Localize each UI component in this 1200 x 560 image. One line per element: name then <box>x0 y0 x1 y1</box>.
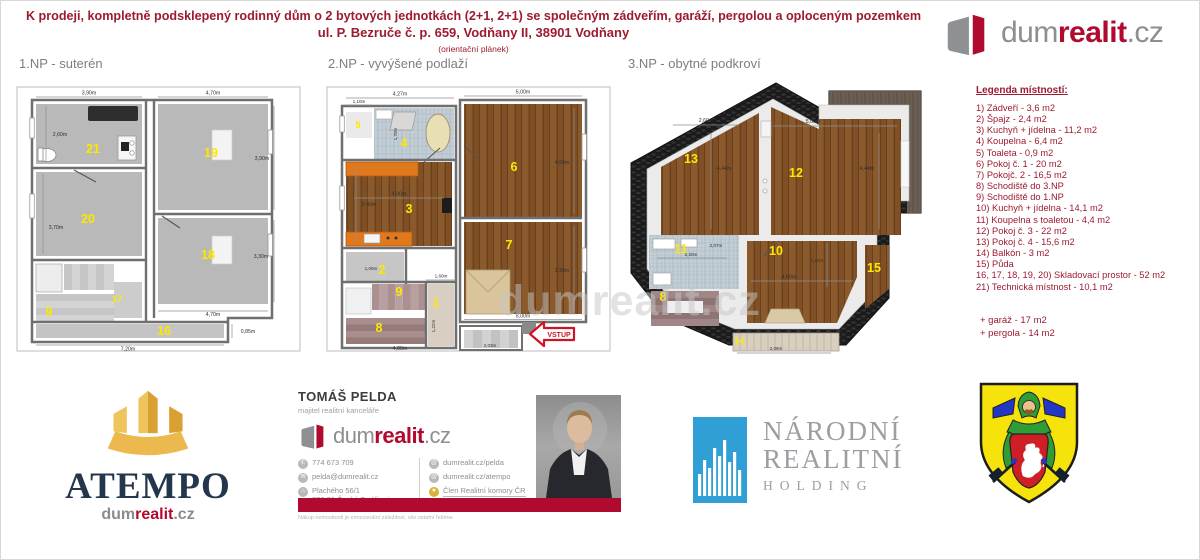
room-number-7: 7 <box>506 238 513 252</box>
atempo-logo: ATEMPO dumrealit.cz <box>39 389 257 524</box>
legend-item: 16, 17, 18, 19, 20) Skladovací prostor -… <box>976 270 1194 281</box>
legend-item: 13) Pokoj č. 4 - 15,6 m2 <box>976 237 1194 248</box>
washbasin <box>376 110 392 119</box>
legend-extra: + pergola - 14 m2 <box>976 327 1194 340</box>
dim-label: 4,70m <box>206 312 220 318</box>
room-number-4: 4 <box>401 136 408 150</box>
dim-label: 1,10m <box>811 258 824 263</box>
room-number-2: 2 <box>379 263 386 277</box>
room-number-9: 9 <box>396 285 403 299</box>
appliance <box>118 136 136 160</box>
window <box>340 186 345 210</box>
room-number-14: 14 <box>734 336 745 347</box>
room-number-1: 1 <box>433 296 440 310</box>
sink <box>364 234 380 243</box>
legend-item: 4) Koupelna - 6,4 m2 <box>976 136 1194 147</box>
dim-label: 2,60m <box>53 132 67 138</box>
legend-item: 1) Zádveří - 3,6 m2 <box>976 103 1194 114</box>
room-number-8: 8 <box>376 321 383 335</box>
email-icon: ✉ <box>298 473 308 483</box>
listing-note: (orientační plánek) <box>1 44 946 54</box>
balcony <box>733 333 839 351</box>
dim-label: 5,00m <box>516 90 530 96</box>
floorplan-1np: 3,90m 4,70m 2,60m 3,70m 3,90m 3,30m 4,70… <box>16 86 301 356</box>
web-icon: @ <box>429 459 439 469</box>
room-number-9: 9 <box>46 305 53 319</box>
room-legend: Legenda místností: 1) Zádveří - 3,6 m2 2… <box>976 85 1194 340</box>
dim-label: 2,06m <box>770 346 783 351</box>
dumrealit-logo: dumrealit.cz <box>942 7 1163 59</box>
nrh-wordmark: NÁRODNÍ REALITNÍ HOLDING <box>763 417 903 494</box>
dim-label: 4,44m <box>717 166 731 172</box>
bathtub <box>426 114 450 152</box>
dim-label: 3,30m <box>254 254 268 260</box>
legend-item: 14) Balkón - 3 m2 <box>976 248 1194 259</box>
window <box>582 134 587 160</box>
dim-label: 2,07m <box>710 243 723 248</box>
room-number-16: 16 <box>157 324 171 338</box>
dim-label: 2,60m <box>699 118 713 124</box>
legend-item: 2) Špajz - 2,4 m2 <box>976 114 1194 125</box>
window <box>268 130 273 154</box>
legend-item: 6) Pokoj č. 1 - 20 m2 <box>976 159 1194 170</box>
crown-icon <box>88 389 208 461</box>
legend-extra: + garáž - 17 m2 <box>976 314 1194 327</box>
legend-title: Legenda místností: <box>976 85 1194 96</box>
dim-label: 3,40m <box>362 202 376 208</box>
listing-address: ul. P. Bezruče č. p. 659, Vodňany II, 38… <box>1 25 946 40</box>
watermark: dumrealit.cz <box>498 277 761 326</box>
agent-web2: dumrealit.cz/atempo <box>443 472 511 481</box>
roof-band <box>829 91 921 107</box>
window <box>268 234 273 256</box>
window <box>30 194 35 218</box>
agent-photo <box>536 395 621 498</box>
plan1-title: 1.NP - suterén <box>19 56 103 71</box>
legend-item: 10) Kuchyň + jídelna - 14,1 m2 <box>976 203 1194 214</box>
room-number-6: 6 <box>511 160 518 174</box>
web-icon: @ <box>429 473 439 483</box>
room-number-17: 17 <box>112 294 123 305</box>
dim-label: 1,70m <box>393 127 398 140</box>
agent-email: pelda@dumrealit.cz <box>312 472 378 481</box>
brand-realit: realit <box>1058 16 1127 49</box>
chimney <box>761 121 771 137</box>
stove <box>442 198 452 213</box>
legend-item: 15) Půda <box>976 259 1194 270</box>
badge-icon: ★ <box>429 487 439 497</box>
kitchen-cabinets <box>346 162 418 176</box>
dark-unit <box>88 106 138 121</box>
dim-label: 2,03m <box>484 343 497 348</box>
dim-label: 4,44m <box>860 166 874 172</box>
dim-label: 3,90m <box>82 91 96 97</box>
washbasin <box>653 239 675 249</box>
room-number-10: 10 <box>769 244 783 258</box>
dim-label: 1,60m <box>435 274 448 279</box>
dim-label: 0,85m <box>241 329 255 335</box>
nrh-logo: NÁRODNÍ REALITNÍ HOLDING <box>693 417 903 503</box>
window <box>582 248 587 272</box>
dim-label: 4,00m <box>393 346 407 352</box>
agent-phone-row: ✆774 673 709 <box>298 458 410 469</box>
atempo-name: ATEMPO <box>39 468 257 505</box>
dim-label: 4,00m <box>555 160 569 166</box>
entrance-label: VSTUP <box>547 332 571 339</box>
room-number-15: 15 <box>867 261 881 275</box>
stairs-down <box>346 318 426 344</box>
agent-phone: 774 673 709 <box>312 458 354 467</box>
legend-item: 8) Schodiště do 3.NP <box>976 181 1194 192</box>
agent-membership: Člen Realitní komory ČR <box>443 486 526 497</box>
phone-icon: ✆ <box>298 459 308 469</box>
skyline-icon <box>693 417 747 503</box>
real-estate-flyer: K prodeji, kompletně podsklepený rodinný… <box>0 0 1200 560</box>
agent-web-row: @dumrealit.cz/pelda <box>429 458 526 469</box>
room-number-5: 5 <box>355 120 361 131</box>
dim-label: 3,70m <box>49 225 63 231</box>
legend-item: 9) Schodiště do 1.NP <box>976 192 1194 203</box>
agent-email-row: ✉pelda@dumrealit.cz <box>298 472 410 483</box>
house-icon <box>298 420 328 451</box>
agent-slogan: Nákup nemovitosti je emocionální záležit… <box>298 515 454 521</box>
legend-item: 11) Koupelna s toaletou - 4,4 m2 <box>976 215 1194 226</box>
brand-wordmark: dumrealit.cz <box>1001 18 1163 48</box>
agent-membership-row: ★Člen Realitní komory ČR <box>429 486 526 497</box>
legend-item: 7) Pokojč. 2 - 16,5 m2 <box>976 170 1194 181</box>
room-number-11: 11 <box>674 242 687 256</box>
dim-label: 1,00m <box>365 266 378 271</box>
dim-label: 7,20m <box>121 347 135 353</box>
dim-label: 3,90m <box>255 156 269 162</box>
header: K prodeji, kompletně podsklepený rodinný… <box>1 9 946 54</box>
dim-label: 4,27m <box>393 92 407 98</box>
furniture <box>765 309 805 323</box>
location-icon: ⌂ <box>298 487 308 497</box>
white-block <box>212 236 232 264</box>
room-number-18: 18 <box>201 248 215 262</box>
red-bar <box>298 498 621 512</box>
listing-title: K prodeji, kompletně podsklepený rodinný… <box>1 9 946 23</box>
atempo-brand: dumrealit.cz <box>39 506 257 524</box>
dim-label: 1,10m <box>353 99 366 104</box>
skylight <box>390 112 416 130</box>
legend-item: 3) Kuchyň + jídelna - 11,2 m2 <box>976 125 1194 136</box>
room-number-21: 21 <box>86 142 100 156</box>
dim-label: 4,00m <box>392 192 406 198</box>
toilet <box>38 148 56 162</box>
room-number-19: 19 <box>204 146 218 160</box>
agent-web2-row: @dumrealit.cz/atempo <box>429 472 526 483</box>
legend-item: 21) Technická místnost - 10,1 m2 <box>976 282 1194 293</box>
dim-label: 3,30m <box>555 268 569 274</box>
room-number-3: 3 <box>406 202 413 216</box>
legend-item: 5) Toaleta - 0,9 m2 <box>976 148 1194 159</box>
plan2-title: 2.NP - vyvýšené podlaží <box>328 56 468 71</box>
city-coat-of-arms <box>973 378 1085 508</box>
window <box>30 118 35 138</box>
agent-web1: dumrealit.cz/pelda <box>443 458 504 467</box>
room-number-13: 13 <box>684 152 698 166</box>
brand-cz: .cz <box>1127 16 1164 49</box>
legend-item: 12) Pokoj č. 3 - 22 m2 <box>976 226 1194 237</box>
dim-label: 5,00m <box>806 119 820 125</box>
window <box>340 116 345 132</box>
dim-label: 4,60m <box>782 275 796 281</box>
dim-label: 1,22m <box>431 319 436 332</box>
room-number-20: 20 <box>81 212 95 226</box>
dim-label: 4,70m <box>206 91 220 97</box>
house-icon <box>942 7 992 59</box>
window <box>901 141 909 187</box>
room-number-12: 12 <box>789 166 803 180</box>
brand-dum: dum <box>1001 16 1058 49</box>
